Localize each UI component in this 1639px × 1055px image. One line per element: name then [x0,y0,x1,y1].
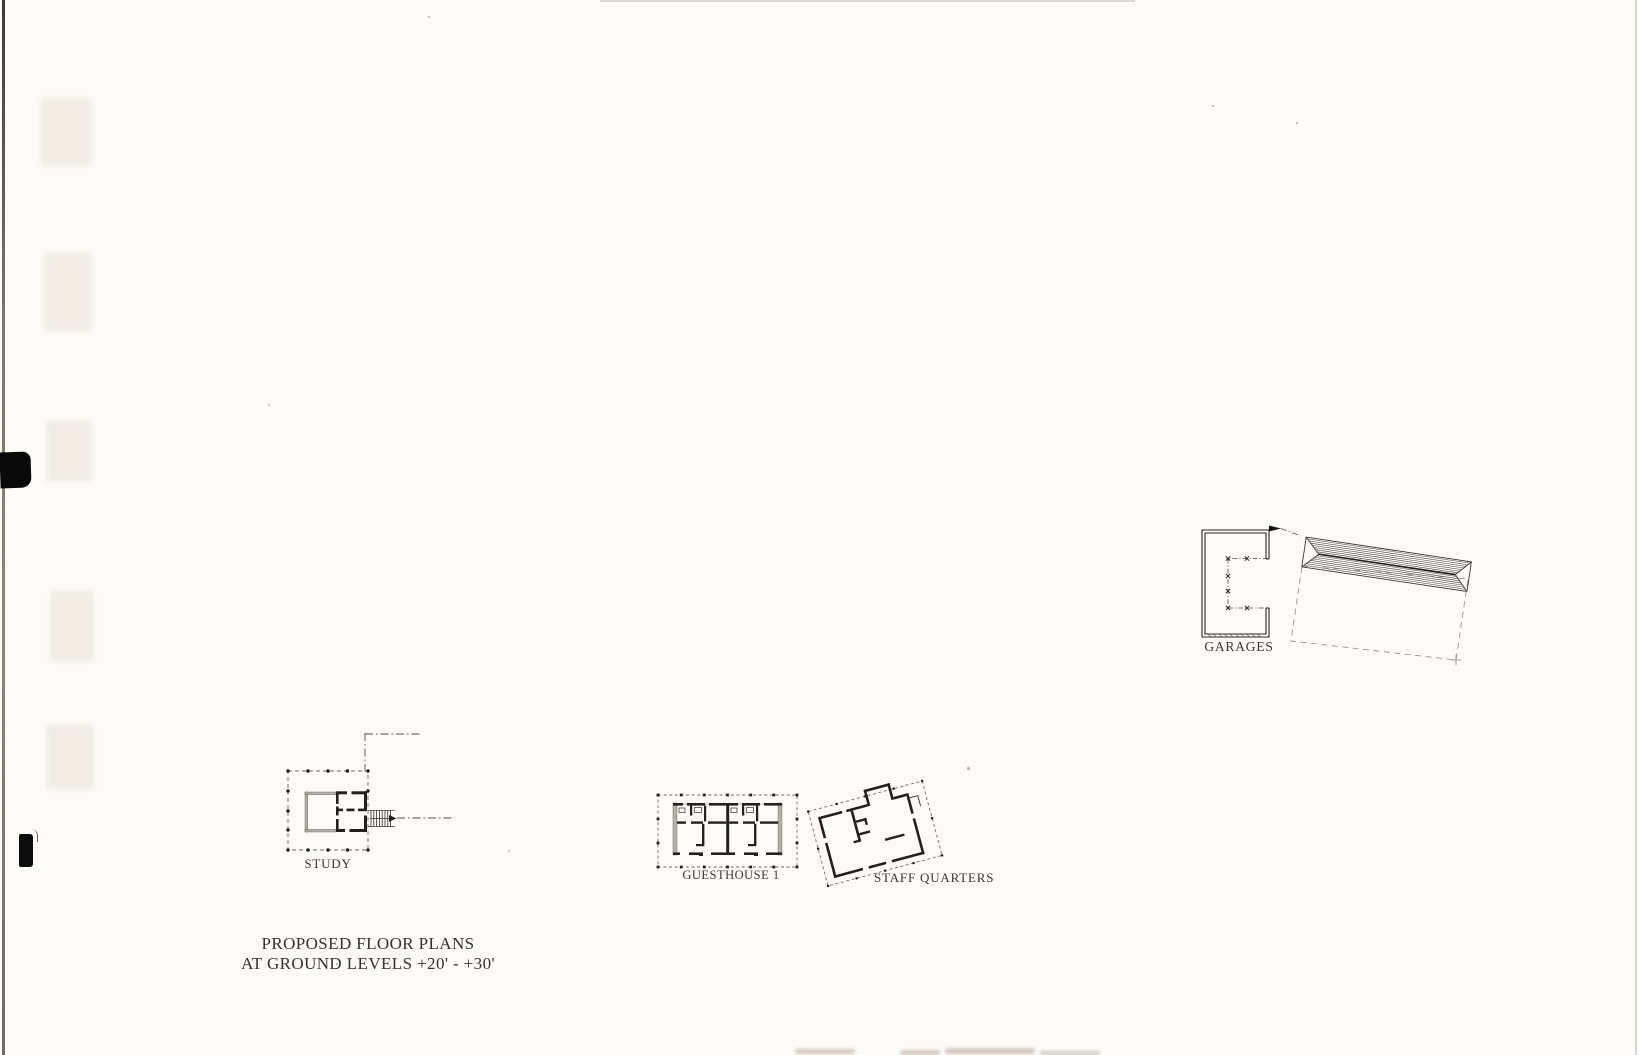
study-label: STUDY [288,856,368,872]
bleed-through-mark [46,420,92,482]
garage-wall-hatch [1208,634,1261,637]
arrow-marker [1269,526,1281,532]
scan-ink-blob-tail [31,829,38,842]
scan-smudge [1040,1051,1100,1055]
sheet-title-line1: PROPOSED FLOOR PLANS [218,934,518,954]
scan-ink-blob-top [0,451,32,488]
bleed-through-mark [50,590,94,662]
dust-speck [508,850,510,852]
study-column-dots [286,769,369,851]
page-top-edge-shadow [600,0,1135,2]
scan-smudge [795,1049,855,1054]
bleed-through-mark [40,98,92,166]
study-floor-plan [283,722,468,874]
dust-speck [1212,105,1214,107]
scan-smudge [945,1048,1035,1054]
dust-speck [428,16,430,18]
garage-column-xmarks [1226,556,1249,610]
scan-smudge [900,1050,940,1055]
guesthouse-1-label: GUESTHOUSE 1 [651,868,811,883]
bleed-through-mark [44,252,92,332]
sheet-title-line2: AT GROUND LEVELS +20' - +30' [218,954,518,974]
sheet-title: PROPOSED FLOOR PLANS AT GROUND LEVELS +2… [218,934,518,975]
page-left-edge-shadow [2,0,5,1055]
dust-speck [967,767,970,770]
study-stair [369,810,397,826]
garages-roof [1302,537,1472,591]
garages-label: GARAGES [1200,639,1278,655]
dust-speck [1296,122,1298,124]
bleed-through-mark [46,724,94,790]
page-right-edge-shadow [1635,0,1637,1055]
staff-quarters-label: STAFF QUARTERS [874,870,989,886]
dust-speck [268,404,270,406]
scanned-floor-plan-sheet: STUDY [0,0,1639,1055]
garages-floor-plan [1195,520,1495,680]
